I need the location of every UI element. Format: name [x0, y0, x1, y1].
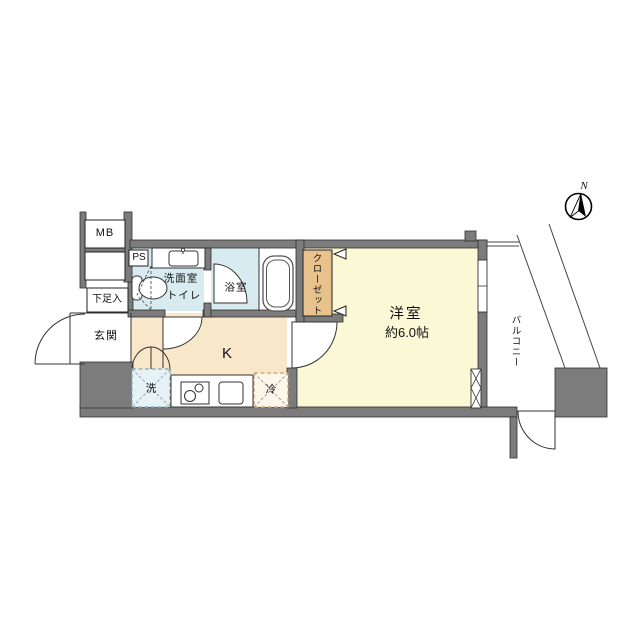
- label-north: N: [580, 181, 587, 193]
- label-toilet: トイレ: [167, 290, 202, 301]
- wall-entrance-mass: [80, 362, 133, 408]
- site-lines: [487, 224, 600, 368]
- label-pipe-space: PS: [132, 253, 145, 264]
- balcony-door-swing: [518, 411, 555, 449]
- boundary-diagonal-left: [517, 235, 565, 368]
- label-fridge: 冷: [266, 384, 277, 395]
- wall-washroom-bath-lower: [204, 303, 211, 317]
- wall-washroom-bottom: [128, 310, 165, 317]
- wall-right-upper: [478, 240, 487, 260]
- stove-burner-large: [185, 391, 196, 402]
- stove-burner-small: [195, 384, 203, 392]
- label-washer: 洗: [146, 383, 157, 394]
- washstand-tap-knob: [181, 248, 184, 251]
- wall-top: [130, 240, 487, 248]
- wall-mb-mid: [85, 248, 125, 252]
- floor-plan-page: MB PS 洗面室 トイレ 浴室 クローゼット 洋室 約6.0帖 K 玄関 下足…: [0, 0, 640, 640]
- label-closet: クローゼット: [311, 253, 321, 316]
- wall-top-stub: [465, 231, 476, 241]
- label-shoe-cabinet: 下足入: [92, 295, 122, 306]
- label-meter-box: MB: [96, 228, 115, 240]
- label-kitchen: K: [222, 346, 232, 362]
- compass: [566, 194, 592, 220]
- label-entrance: 玄関: [94, 331, 118, 343]
- kitchen-sink: [219, 382, 243, 404]
- label-western-room: 洋室: [390, 307, 423, 322]
- wall-bottom: [80, 407, 517, 417]
- label-bathroom: 浴室: [225, 282, 248, 293]
- label-washroom: 洗面室: [164, 273, 199, 284]
- bathtub-inner: [267, 260, 290, 307]
- wall-neighbor-block: [555, 368, 607, 417]
- label-western-room-size: 約6.0帖: [385, 326, 429, 340]
- boundary-diagonal-right: [549, 224, 600, 368]
- floor-plan-drawing: [0, 0, 640, 640]
- lower-window-shutter: [471, 369, 481, 408]
- wall-bottom-stub: [510, 417, 517, 458]
- label-balcony: バルコニー: [510, 315, 520, 368]
- meter-box-lower: [85, 252, 125, 280]
- entrance-door-arc: [35, 314, 85, 364]
